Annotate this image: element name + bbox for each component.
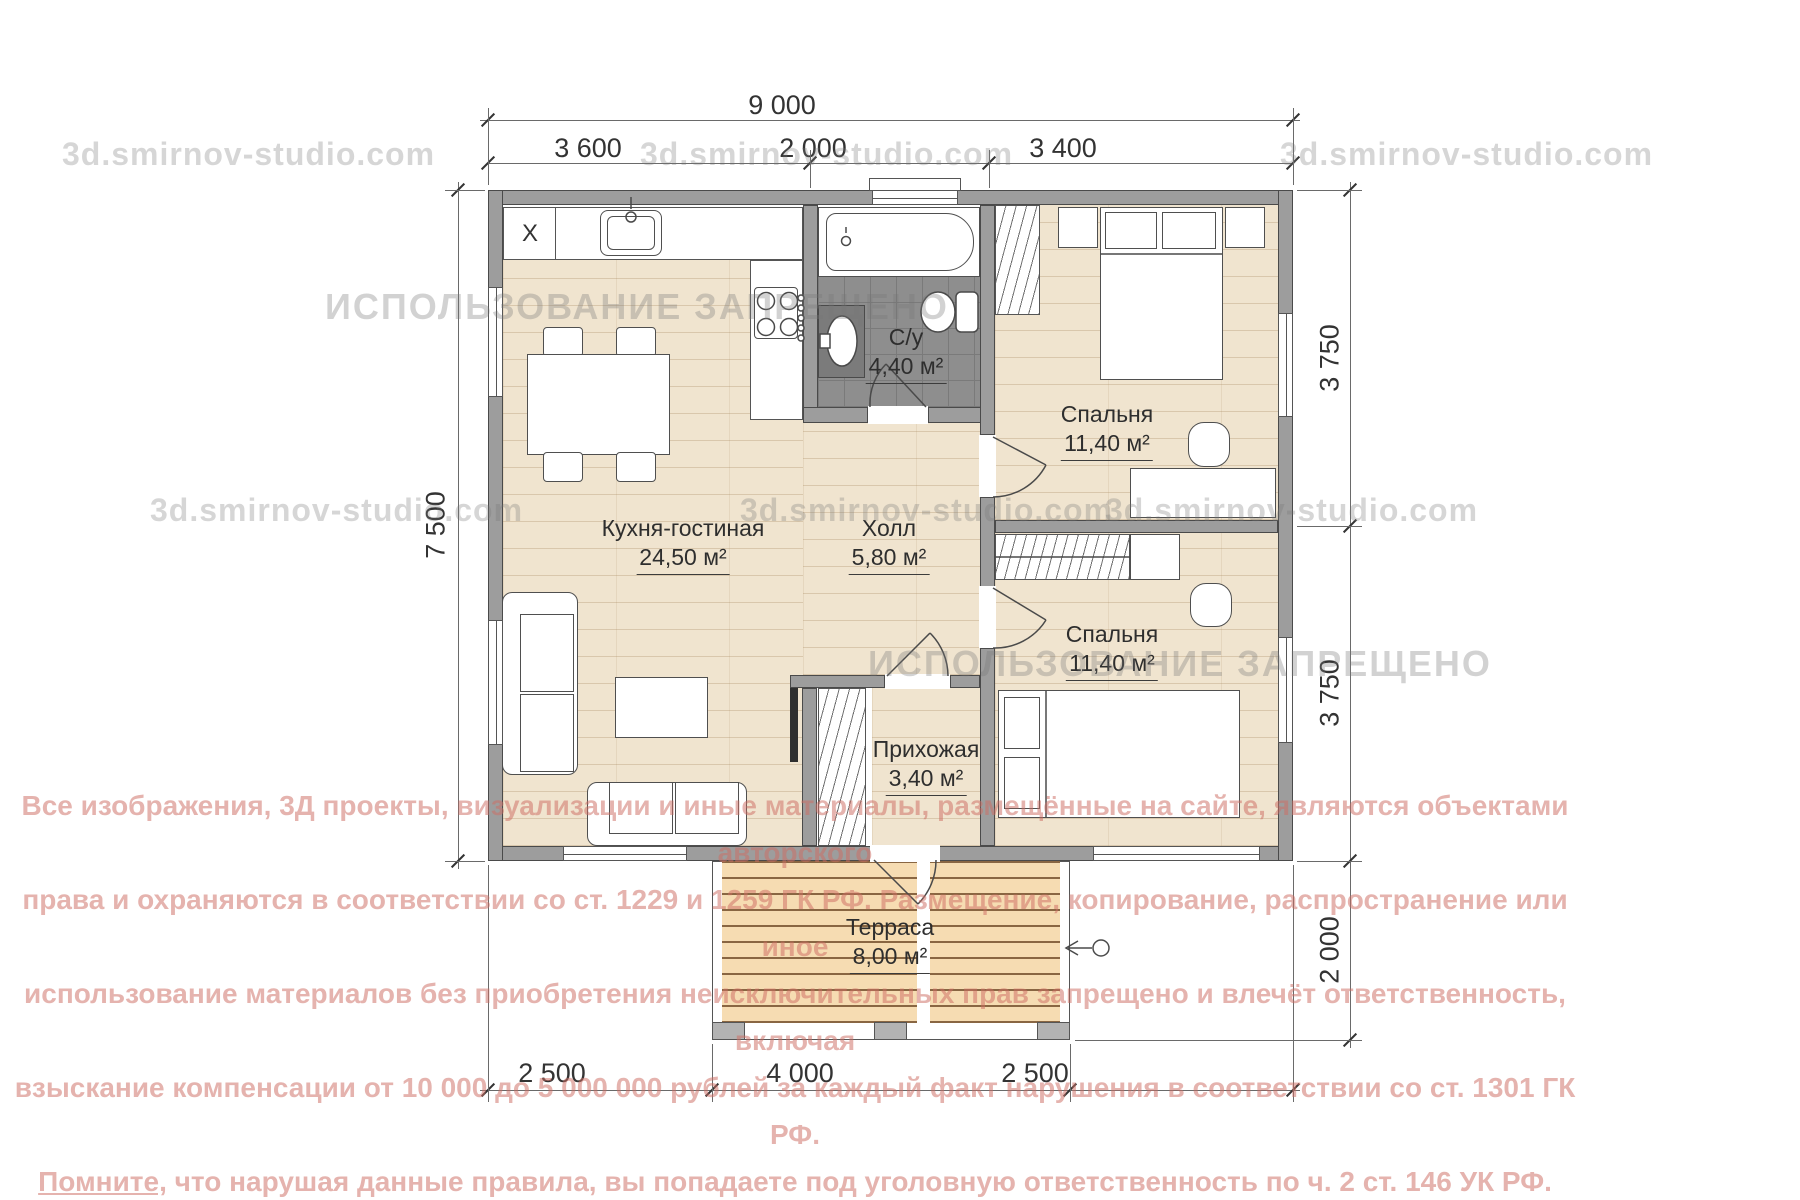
dim-line-top-total — [480, 120, 1300, 121]
dim-top-total: 9 000 — [748, 90, 816, 121]
watermark-site: 3d.smirnov-studio.com — [1105, 492, 1478, 529]
bathtub-drain — [842, 237, 851, 246]
copyright-line: использование материалов без приобретени… — [0, 970, 1590, 1064]
dim-top-seg3: 3 400 — [1029, 133, 1097, 164]
kitchen-tap — [626, 212, 636, 222]
room-area: 11,40 м² — [1061, 429, 1153, 461]
ext-line — [1297, 190, 1362, 191]
room-label-bedroom1: Спальня 11,40 м² — [1061, 400, 1153, 461]
room-area: 4,40 м² — [866, 352, 947, 384]
watermark-site: 3d.smirnov-studio.com — [1280, 136, 1653, 173]
dim-top-seg1: 3 600 — [554, 133, 622, 164]
door-swing-bedroom2 — [993, 588, 1046, 648]
room-name: Прихожая — [873, 735, 980, 764]
copyright-line: Помните, что нарушая данные правила, вы … — [0, 1158, 1590, 1200]
copyright-line: права и охраняются в соответствии со ст.… — [0, 876, 1590, 970]
room-label-bathroom: С/у 4,40 м² — [866, 323, 947, 384]
room-area: 5,80 м² — [849, 543, 930, 575]
copyright-line: взыскание компенсации от 10 000 до 5 000… — [0, 1064, 1590, 1158]
watermark-forbidden: ИСПОЛЬЗОВАНИЕ ЗАПРЕЩЕНО — [325, 286, 949, 328]
room-area: 24,50 м² — [636, 543, 729, 575]
watermark-site: 3d.smirnov-studio.com — [740, 492, 1113, 529]
ext-line — [445, 190, 485, 191]
spice-dot — [798, 335, 804, 341]
copyright-line-rest: что нарушая данные правила, вы попадаете… — [167, 1166, 1552, 1197]
bath-sink-tap — [820, 334, 830, 348]
dim-right-seg1: 3 750 — [1315, 324, 1346, 392]
door-swing-bedroom1 — [993, 437, 1046, 497]
copyright-line: Все изображения, 3Д проекты, визуализаци… — [0, 782, 1590, 876]
watermark-site: 3d.smirnov-studio.com — [150, 492, 523, 529]
floor-plan-canvas: X — [0, 0, 1800, 1200]
copyright-warning-word: Помните, — [38, 1166, 167, 1197]
watermark-forbidden: ИСПОЛЬЗОВАНИЕ ЗАПРЕЩЕНО — [868, 643, 1492, 685]
toilet-tank — [956, 292, 978, 332]
watermark-site: 3d.smirnov-studio.com — [62, 136, 435, 173]
copyright-block: Все изображения, 3Д проекты, визуализаци… — [0, 782, 1590, 1200]
ext-line — [488, 108, 489, 185]
room-name: Спальня — [1061, 400, 1153, 429]
watermark-site: 3d.smirnov-studio.com — [640, 136, 1013, 173]
